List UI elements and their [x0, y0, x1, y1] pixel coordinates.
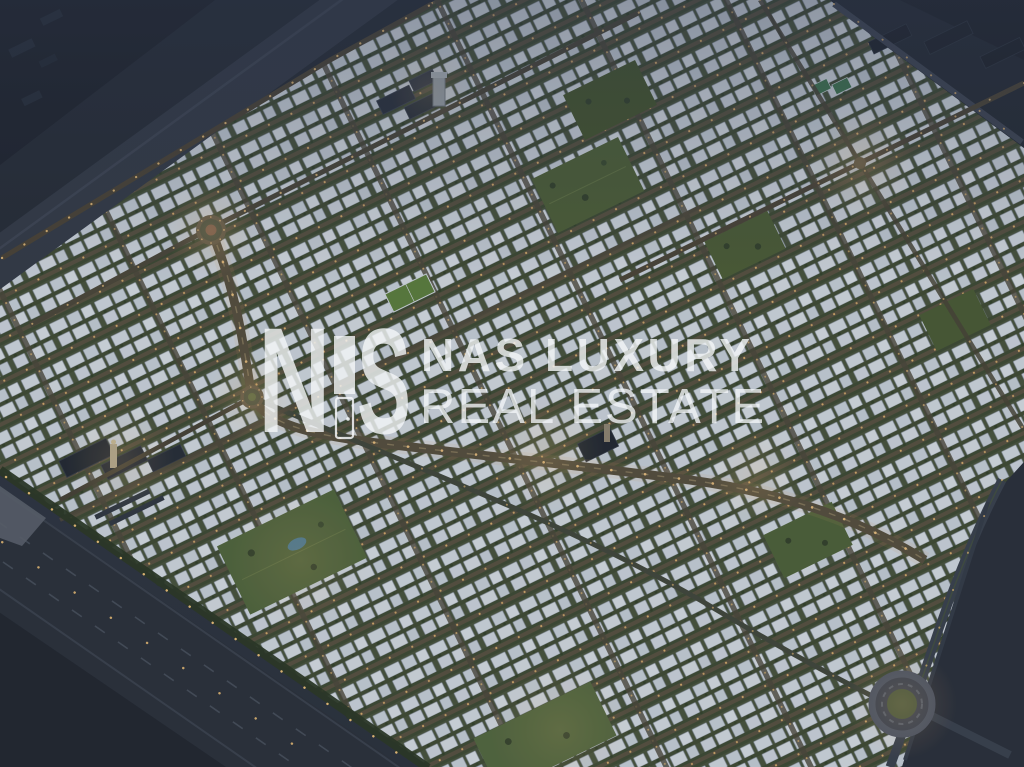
- watermark-title-line2: REAL ESTATE: [420, 380, 768, 434]
- watermark-title-line1: NAS LUXURY: [421, 329, 755, 381]
- aerial-community-render: N S NAS LUXURY REAL ESTATE: [0, 0, 1024, 767]
- logo-letter-s: S: [357, 297, 411, 465]
- logo-letter-n: N: [258, 297, 331, 465]
- scene-canvas: N S NAS LUXURY REAL ESTATE: [0, 0, 1024, 767]
